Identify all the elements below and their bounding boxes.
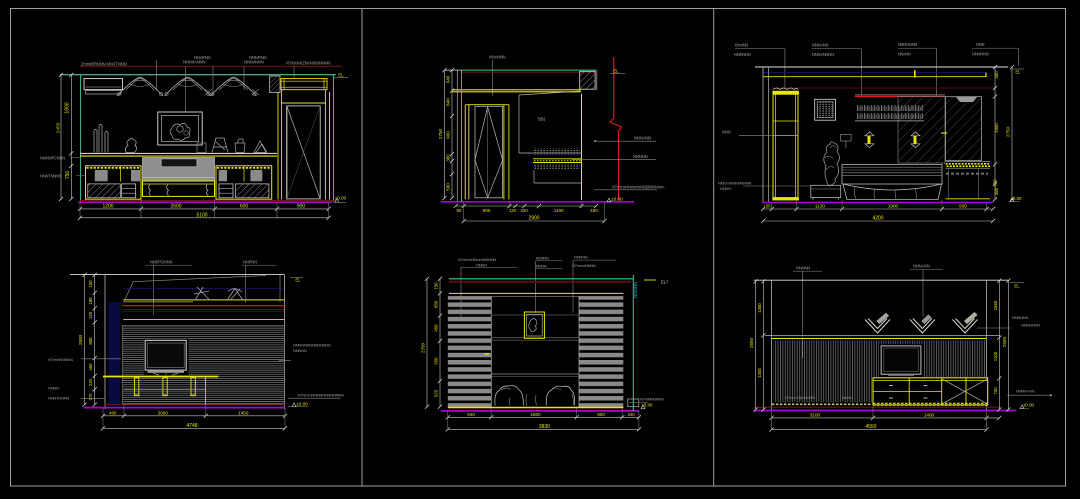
svg-text:NNmmNNNNNNNN: NNmmNNNNNNNN xyxy=(718,181,751,186)
svg-text:±0.00: ±0.00 xyxy=(642,402,654,407)
svg-text:1400: 1400 xyxy=(924,412,935,417)
svg-text:2750: 2750 xyxy=(421,342,426,353)
svg-text:NNNANN: NNNANN xyxy=(812,43,829,48)
svg-text:900: 900 xyxy=(597,412,605,417)
svg-text:NNNNNN: NNNNNN xyxy=(972,52,989,57)
svg-text:±0.00: ±0.00 xyxy=(611,197,623,202)
svg-text:NNNN: NNNN xyxy=(536,264,547,269)
svg-text:900: 900 xyxy=(483,208,491,213)
svg-text:NNNNNNN: NNNNNNN xyxy=(898,42,918,47)
svg-text:NNN: NNN xyxy=(722,130,731,135)
svg-text:1200: 1200 xyxy=(102,203,113,209)
svg-text:1350: 1350 xyxy=(757,303,762,313)
svg-text:150: 150 xyxy=(764,204,772,209)
svg-text:1130: 1130 xyxy=(815,204,825,209)
svg-text:NNNNN: NNNNN xyxy=(293,348,307,353)
svg-text:330: 330 xyxy=(520,208,528,213)
svg-text:EL: EL xyxy=(338,73,344,78)
svg-text:580: 580 xyxy=(445,183,450,191)
svg-text:1800: 1800 xyxy=(530,412,541,417)
svg-text:NNNN: NNNN xyxy=(48,386,59,391)
svg-text:EL: EL xyxy=(295,278,301,283)
svg-text:120: 120 xyxy=(88,311,93,319)
svg-text:EL: EL xyxy=(1014,284,1020,289)
svg-text:2600: 2600 xyxy=(170,203,181,209)
svg-text:NNxNN: NNxNN xyxy=(898,52,911,57)
svg-text:900: 900 xyxy=(959,204,967,209)
svg-text:NTmmxNNNN: NTmmxNNNN xyxy=(572,263,596,268)
svg-text:380: 380 xyxy=(994,187,999,195)
svg-text:NNNNN: NNNNN xyxy=(796,266,810,271)
svg-text:NNNN: NNNN xyxy=(720,186,731,191)
svg-text:2450: 2450 xyxy=(56,122,62,133)
svg-text:NNNTNNNN: NNNTNNNN xyxy=(48,396,69,401)
svg-text:±0.00: ±0.00 xyxy=(296,402,308,407)
svg-text:NN: NN xyxy=(538,117,545,123)
svg-text:NTNmmNNNNNNNNNNNN: NTNmmNNNNNNNNNNNN xyxy=(298,393,344,398)
svg-text:NNN: NNN xyxy=(976,42,985,47)
svg-text:2750: 2750 xyxy=(438,128,443,139)
svg-text:2650: 2650 xyxy=(749,337,754,348)
svg-text:3830: 3830 xyxy=(539,424,550,430)
svg-text:1560: 1560 xyxy=(993,300,998,310)
svg-text:450: 450 xyxy=(590,208,598,213)
svg-text:900: 900 xyxy=(297,203,306,209)
svg-text:800: 800 xyxy=(88,337,93,345)
svg-text:NNNN: NNNN xyxy=(842,395,853,400)
svg-text:NTmm+NNNmNN: NTmm+NNNmNN xyxy=(785,395,815,400)
svg-text:1450: 1450 xyxy=(238,410,249,415)
svg-text:NNNNNN: NNNNNN xyxy=(1012,315,1028,320)
svg-text:ABNNN: ABNNN xyxy=(536,255,549,260)
svg-text:1950: 1950 xyxy=(994,123,999,133)
svg-text:NNNNNNN: NNNNNNN xyxy=(1021,323,1040,328)
svg-text:340: 340 xyxy=(445,75,450,83)
svg-text:NNNNN: NNNNN xyxy=(574,255,588,260)
svg-text:4748: 4748 xyxy=(186,423,197,429)
svg-text:550: 550 xyxy=(433,357,438,365)
svg-text:525: 525 xyxy=(433,389,438,397)
svg-text:NNPNN: NNPNN xyxy=(243,260,257,265)
svg-text:150: 150 xyxy=(88,280,93,288)
svg-text:±0.00: ±0.00 xyxy=(1023,403,1035,408)
svg-text:600: 600 xyxy=(240,203,249,209)
svg-text:240: 240 xyxy=(88,378,93,386)
svg-text:NNN#ANNN: NNN#ANNN xyxy=(183,60,205,65)
svg-text:EL: EL xyxy=(613,69,619,74)
svg-text:1100: 1100 xyxy=(993,351,998,361)
svg-text:NTMxNXZNnNXMNNNN: NTMxNXZNnNXMNNNN xyxy=(286,61,330,66)
svg-text:NNNNNNNNNNNNNN: NNNNNNNNNNNNNN xyxy=(293,343,331,348)
svg-text:270: 270 xyxy=(88,393,93,401)
svg-text:NTmmNNNNN: NTmmNNNNN xyxy=(48,357,73,362)
svg-text:4550: 4550 xyxy=(865,424,876,430)
svg-text:380: 380 xyxy=(445,154,450,162)
svg-text:450: 450 xyxy=(994,71,999,79)
svg-text:NNNANN: NNNANN xyxy=(634,136,651,141)
svg-text:BmxNN: BmxNN xyxy=(735,43,748,48)
svg-text:NNxNNN: NNxNNN xyxy=(489,55,506,60)
svg-text:3100: 3100 xyxy=(810,412,821,417)
svg-text:NNNNN: NNNNN xyxy=(633,282,638,298)
svg-text:750: 750 xyxy=(65,171,71,180)
svg-text:150: 150 xyxy=(433,282,438,290)
svg-text:180: 180 xyxy=(88,297,93,305)
svg-text:NNNTNNNN: NNNTNNNN xyxy=(40,174,62,179)
svg-text:NTNNNNNNN: NTNNNNNNN xyxy=(640,397,664,402)
svg-text:NNN#NNN: NNN#NNN xyxy=(244,60,264,65)
svg-text:650: 650 xyxy=(433,300,438,308)
svg-text:4200: 4200 xyxy=(872,216,883,222)
svg-text:NNNN: NNNN xyxy=(476,263,487,268)
svg-text:120: 120 xyxy=(509,208,517,213)
svg-text:2800: 2800 xyxy=(78,334,83,345)
svg-text:NNNNNN: NNNNNN xyxy=(734,52,751,57)
svg-text:240: 240 xyxy=(628,412,636,417)
svg-text:940: 940 xyxy=(467,412,475,417)
svg-text:3000: 3000 xyxy=(158,410,169,415)
svg-text:2900: 2900 xyxy=(528,216,539,222)
svg-text:±0.00: ±0.00 xyxy=(335,196,347,201)
svg-text:1900: 1900 xyxy=(888,204,899,209)
svg-text:620: 620 xyxy=(993,179,998,187)
svg-text:730: 730 xyxy=(993,387,998,395)
svg-text:NNNN+NN: NNNN+NN xyxy=(1016,389,1035,394)
svg-text:90: 90 xyxy=(457,208,462,213)
svg-text:2750: 2750 xyxy=(1006,126,1011,137)
svg-text:450: 450 xyxy=(88,363,93,371)
svg-text:450: 450 xyxy=(433,324,438,332)
svg-text:NNNNN: NNNNN xyxy=(633,154,648,159)
svg-text:NTmmxNNmmNNN@NNNmm: NTmmxNNmmNNN@NNNmm xyxy=(612,185,665,190)
svg-text:NNNANN: NNNANN xyxy=(913,264,930,269)
svg-text:640: 640 xyxy=(445,98,450,106)
svg-text:1800: 1800 xyxy=(65,102,71,113)
svg-text:NNPPGNNN: NNPPGNNN xyxy=(150,260,173,265)
svg-text:5100: 5100 xyxy=(196,212,207,218)
svg-text:2650: 2650 xyxy=(1002,336,1007,347)
svg-text:NmNNPCNNN: NmNNPCNNN xyxy=(40,156,65,161)
svg-text:EL?: EL? xyxy=(661,280,669,285)
svg-text:1100: 1100 xyxy=(554,208,564,213)
svg-text:NNNXNNNN: NNNXNNNN xyxy=(812,52,834,57)
svg-text:1300: 1300 xyxy=(757,368,762,378)
svg-text:900: 900 xyxy=(445,131,450,139)
svg-text:EL: EL xyxy=(1015,70,1021,75)
svg-text:NTmmxNNmmNNNNN: NTmmxNNmmNNNNN xyxy=(458,257,496,262)
svg-text:400: 400 xyxy=(109,410,117,415)
